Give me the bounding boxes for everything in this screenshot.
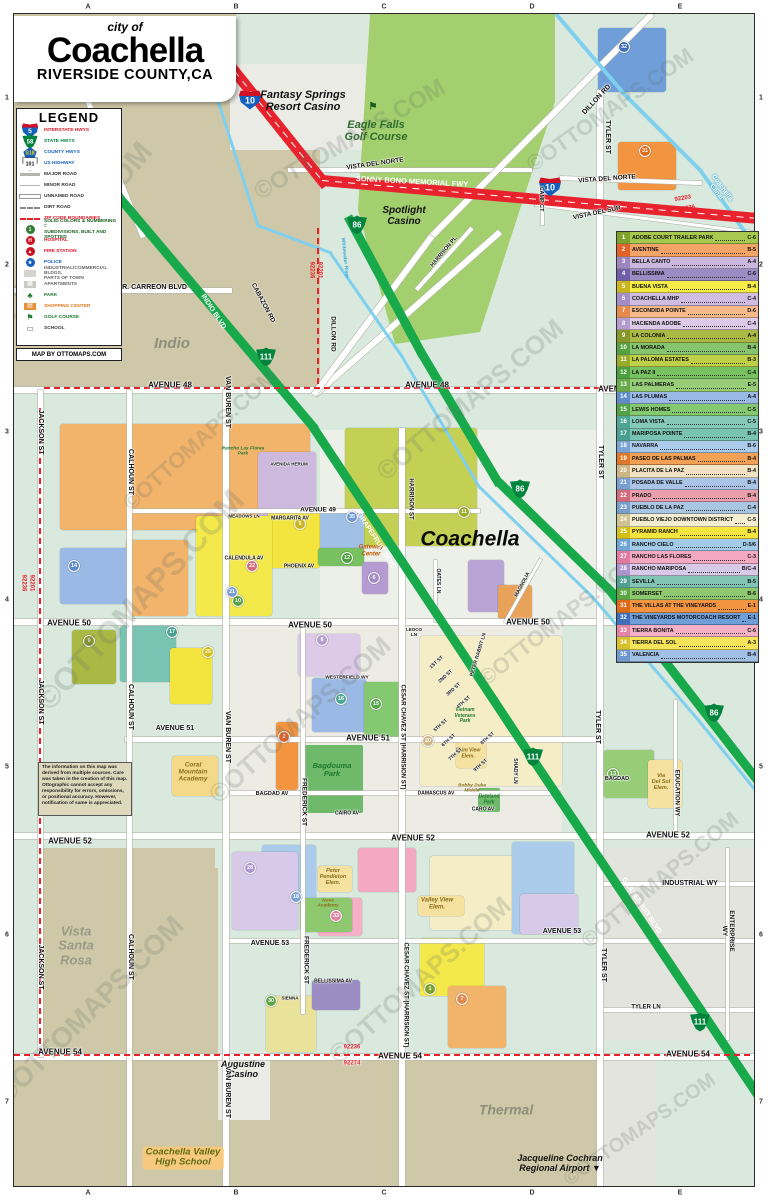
- grid-row-7: 7: [5, 1099, 9, 1106]
- subdivision-area: [358, 848, 416, 892]
- legend-item: 1SOLID COLORS & NUMBERING = SUBDIVISIONS…: [19, 224, 119, 235]
- index-grid-ref: E-1: [748, 603, 758, 609]
- index-leader-dots: [735, 517, 745, 524]
- index-name: LAS PLUMAS: [630, 394, 667, 400]
- index-row: 23PUEBLO DE LA PAZC-4: [617, 502, 758, 514]
- grid-row-7: 7: [759, 1099, 763, 1106]
- grid-col-C: C: [381, 4, 386, 11]
- index-name: PYRAMID RANCH: [630, 529, 678, 535]
- index-name: RANCHO MARIPOSA: [630, 566, 686, 572]
- index-row: 13LAS PALMERASE-5: [617, 379, 758, 391]
- index-leader-dots: [686, 467, 745, 474]
- index-leader-dots: [672, 406, 745, 413]
- title-county: RIVERSIDE COUNTY,CA: [14, 67, 236, 83]
- legend-item-label: MINOR ROAD: [44, 183, 75, 188]
- legend-item-label: POLICE: [44, 260, 62, 265]
- coachella-map-page: { "title": {"city_of": "city of", "name"…: [0, 0, 768, 1200]
- index-grid-ref: D-6: [747, 308, 758, 314]
- road-tyler-st: TYLER ST: [596, 445, 604, 479]
- subdivision-badge-6: 6: [368, 572, 380, 584]
- index-number: 19: [617, 453, 630, 464]
- index-leader-dots: [667, 332, 745, 339]
- zip-92236: 92236: [308, 262, 315, 279]
- index-grid-ref: C-5: [747, 407, 758, 413]
- road-dillon-rd: DILLON RD: [329, 316, 336, 351]
- road-avenue-52: AVENUE 52: [48, 838, 92, 847]
- road-bagdad-av: BAGDAD AV: [256, 791, 289, 797]
- index-grid-ref: B-4: [747, 456, 758, 462]
- road-avenue-48: AVENUE 48: [405, 382, 449, 391]
- index-row: 26RANCHO CIELOD-5/6: [617, 539, 758, 551]
- road-line: [399, 428, 405, 1186]
- grid-row-6: 6: [5, 932, 9, 939]
- index-name: ADOBE COURT TRAILER PARK: [630, 235, 713, 241]
- subdivision-badge-31: 31: [639, 145, 651, 157]
- whitewater-river: [696, 717, 754, 790]
- index-grid-ref: C-5: [747, 419, 758, 425]
- map-credit: MAP BY OTTOMAPS.COM: [16, 348, 122, 361]
- label-indio: Indio: [154, 336, 190, 353]
- index-grid-ref: C-6: [747, 271, 758, 277]
- legend-item: ♣PARK: [19, 290, 119, 301]
- index-row: 12LA PAZ IIC-4: [617, 367, 758, 379]
- road-bagdad: BAGDAD: [605, 776, 629, 782]
- index-name: HACIENDA ADOBE: [630, 321, 681, 327]
- index-leader-dots: [657, 578, 746, 585]
- road-tyler-st: TYLER ST: [603, 120, 611, 154]
- index-name: TIERRA BONITA: [630, 628, 674, 634]
- road-jackson-st: JACKSON ST: [36, 944, 44, 989]
- shopping-cart-icon: ▤: [24, 303, 36, 310]
- subdivision-badge-1: 1: [424, 983, 436, 995]
- grid-row-4: 4: [5, 597, 9, 604]
- index-name: POSADA DE VALLE: [630, 480, 683, 486]
- legend-item-label: GOLF COURSE: [44, 315, 79, 320]
- index-row: 25PYRAMID RANCHB-4: [617, 527, 758, 539]
- subdivision-badge-32: 32: [618, 41, 630, 53]
- map-title-box: city of Coachella RIVERSIDE COUNTY,CA: [14, 16, 236, 102]
- index-leader-dots: [742, 615, 745, 622]
- subdivision-area: [232, 852, 298, 930]
- index-leader-dots: [657, 369, 745, 376]
- road-line: [597, 90, 603, 1186]
- index-grid-ref: B-4: [747, 468, 758, 474]
- legend-swatch: [19, 270, 41, 277]
- legend-item: ▭SCHOOL: [19, 323, 119, 334]
- park-icon: ♣: [19, 291, 41, 300]
- bagdouma-park-area: [305, 745, 363, 813]
- road-avenida-herum: AVENIDA HERUM: [270, 463, 308, 468]
- index-leader-dots: [718, 602, 745, 609]
- index-name: LEWIS HOMES: [630, 407, 670, 413]
- road-avenue-50: AVENUE 50: [506, 619, 550, 628]
- road-leoco-ln: LEOCO LN: [406, 628, 422, 638]
- index-number: 5: [617, 281, 630, 292]
- index-name: LA PAZ II: [630, 370, 655, 376]
- index-number: 21: [617, 478, 630, 489]
- road-avenue-50: AVENUE 50: [47, 620, 91, 629]
- road-education-wy: EDUCATION WY: [673, 770, 680, 817]
- index-leader-dots: [698, 455, 746, 462]
- index-leader-dots: [672, 259, 745, 266]
- legend-panel: LEGEND 5INTERSTATE HWYS58STATE HWYSS18CO…: [16, 108, 122, 346]
- subdivision-area: [430, 856, 518, 930]
- subdivision-badge-11: 11: [458, 506, 470, 518]
- legend-swatch: [19, 207, 41, 209]
- legend-swatch-thin: [20, 185, 40, 187]
- index-number: 20: [617, 465, 630, 476]
- legend-item-label: STATE HWYS: [44, 139, 75, 144]
- thermal-area: [14, 1057, 600, 1186]
- road-frederick-st: FREDERICK ST: [300, 778, 307, 826]
- label-bagdouma-park: Bagdouma Park: [313, 762, 352, 779]
- index-number: 15: [617, 404, 630, 415]
- subdivision-number-icon: 1: [19, 225, 41, 234]
- index-leader-dots: [681, 295, 745, 302]
- index-name: LA PALOMA ESTATES: [630, 357, 689, 363]
- county-shield: S18: [23, 147, 37, 159]
- label-peter-pendleton-elem: Peter Pendleton Elem.: [320, 868, 347, 886]
- index-grid-ref: B-4: [747, 284, 758, 290]
- index-row: 24PUEBLO VIEJO DOWNTOWN DISTRICTC-5: [617, 514, 758, 526]
- index-number: 29: [617, 576, 630, 587]
- legend-item: DIRT ROAD: [19, 202, 119, 213]
- index-number: 28: [617, 564, 630, 575]
- index-row: 4BELLISSIMAC-6: [617, 269, 758, 281]
- legend-item: 5INTERSTATE HWYS: [19, 125, 119, 136]
- label-spotlight-casino: Spotlight Casino: [382, 205, 425, 227]
- disclaimer-box: The information on this map was derived …: [38, 762, 132, 816]
- shopping-cart-icon: ▤: [19, 303, 41, 310]
- index-name: VALENCIA: [630, 652, 659, 658]
- legend-item: 101US HIGHWAY: [19, 158, 119, 169]
- road-margarita-av: MARGARITA AV: [271, 516, 309, 522]
- index-leader-dots: [693, 553, 745, 560]
- road-frederick-st: FREDERICK ST: [302, 936, 309, 984]
- index-row: 8HACIENDA ADOBEC-4: [617, 318, 758, 330]
- road-van-buren-st: VAN BUREN ST: [223, 376, 231, 428]
- index-name: PLACITA DE LA PAZ: [630, 468, 684, 474]
- road-enterprise-wy: ENTERPRISE WY: [721, 910, 735, 952]
- index-number: 8: [617, 318, 630, 329]
- subdivision-badge-7: 7: [456, 993, 468, 1005]
- index-number: 1: [617, 232, 630, 243]
- index-grid-ref: B-4: [747, 480, 758, 486]
- grid-row-2: 2: [759, 262, 763, 269]
- index-row: 32THE VINEYARDS MOTORCOACH RESORTE-1: [617, 613, 758, 625]
- vista-santa-rosa-2: [130, 868, 218, 1054]
- subdivision-badge-25: 25: [202, 646, 214, 658]
- road-cesar-chavez-st: CESAR CHAVEZ ST (HARRISION ST): [399, 685, 406, 790]
- index-name: TIERRA DEL SOL: [630, 640, 677, 646]
- legend-item: ⚑GOLF COURSE: [19, 312, 119, 323]
- index-leader-dots: [667, 418, 746, 425]
- index-row: 11LA PALOMA ESTATESB-3: [617, 355, 758, 367]
- index-name: BELLA CANTO: [630, 259, 670, 265]
- legend-swatch-box: [24, 270, 36, 277]
- index-number: 12: [617, 367, 630, 378]
- label-veterans-park: Vietnam Veterans Park: [455, 708, 476, 725]
- road-van-buren-st: VAN BUREN ST: [223, 1066, 231, 1118]
- index-row: 18NAVARRAB-6: [617, 441, 758, 453]
- index-leader-dots: [676, 541, 741, 548]
- legend-swatch-outline: [19, 194, 41, 199]
- index-leader-dots: [691, 357, 746, 364]
- legend-item-label: MAJOR ROAD: [44, 172, 77, 177]
- index-number: 2: [617, 244, 630, 255]
- subdivision-badge-12: 12: [341, 552, 353, 564]
- label-rancho-las-flores-park: Rancho Las Flores Park: [222, 447, 265, 458]
- index-number: 10: [617, 343, 630, 354]
- index-name: SEVILLA: [630, 579, 655, 585]
- index-number: 31: [617, 600, 630, 611]
- zip-92236: 92236: [20, 575, 27, 592]
- index-leader-dots: [685, 480, 746, 487]
- index-leader-dots: [660, 443, 745, 450]
- road-jackson-st: JACKSON ST: [36, 679, 44, 724]
- page-title: Coachella: [14, 34, 236, 67]
- index-leader-dots: [653, 492, 745, 499]
- index-grid-ref: B-4: [747, 529, 758, 535]
- road-harrison-st: HARRISON ST: [407, 478, 414, 519]
- grid-col-D: D: [529, 1190, 534, 1197]
- subdivision-badge-9: 9: [83, 635, 95, 647]
- grid-row-3: 3: [759, 429, 763, 436]
- index-row: 6COACHELLA MHPC-4: [617, 293, 758, 305]
- index-name: PASEO DE LAS PALMAS: [630, 456, 696, 462]
- road-avenue-53: AVENUE 53: [251, 940, 289, 948]
- index-row: 14LAS PLUMASA-4: [617, 392, 758, 404]
- index-row: 31THE VILLAS AT THE VINEYARDSE-1: [617, 600, 758, 612]
- index-number: 4: [617, 269, 630, 280]
- road-avenue-51: AVENUE 51: [346, 735, 390, 744]
- road-jackson-st: JACKSON ST: [36, 409, 44, 454]
- index-number: 9: [617, 330, 630, 341]
- grid-col-B: B: [233, 1190, 238, 1197]
- police-icon: ★: [19, 258, 41, 267]
- road-avenue-52: AVENUE 52: [391, 835, 435, 844]
- road-avenue-50: AVENUE 50: [288, 622, 332, 631]
- legend-item-label: APARTMENTS: [44, 282, 77, 287]
- index-grid-ref: A-4: [747, 394, 758, 400]
- road-van-buren-st: VAN BUREN ST: [223, 711, 231, 763]
- road-avenue-54: AVENUE 54: [378, 1053, 422, 1062]
- road-calhoun-st: CALHOUN ST: [126, 449, 134, 495]
- legend-item-label: DIRT ROAD: [44, 205, 71, 210]
- index-number: 11: [617, 355, 630, 366]
- road-line: [14, 833, 754, 839]
- school-icon: ▭: [26, 324, 34, 333]
- road-camp-ct: CAMP CT: [538, 187, 544, 212]
- grid-row-1: 1: [5, 95, 9, 102]
- grid-col-A: A: [85, 1190, 90, 1197]
- index-number: 30: [617, 588, 630, 599]
- index-row: 28RANCHO MARIPOSAB/C-4: [617, 564, 758, 576]
- index-name: AVENTINE: [630, 247, 659, 253]
- index-number: 32: [617, 613, 630, 624]
- grid-row-5: 5: [5, 764, 9, 771]
- label-coachella: Coachella: [420, 527, 519, 550]
- subdivision-badge-20: 20: [422, 735, 434, 747]
- index-grid-ref: C-3: [747, 554, 758, 560]
- label-cv-high-school: Coachella Valley High School: [143, 1147, 224, 1170]
- golf-icon: ⚑: [26, 313, 33, 322]
- fire-station-icon: ▲: [19, 247, 41, 256]
- label-via-del-sol-elem: Via Del Sol Elem.: [652, 773, 671, 791]
- index-grid-ref: B-4: [747, 431, 758, 437]
- index-number: 18: [617, 441, 630, 452]
- index-grid-ref: C-4: [747, 370, 758, 376]
- subdivision-badge-17: 17: [166, 626, 178, 638]
- hospital-icon: H: [19, 236, 41, 245]
- zip-92274: 92274: [344, 1061, 361, 1068]
- road-cairo-av: CAIRO AV: [335, 811, 359, 817]
- index-number: 35: [617, 650, 630, 661]
- subdivision-area: [298, 634, 360, 676]
- road-calhoun-st: CALHOUN ST: [126, 684, 134, 730]
- index-name: THE VINEYARDS MOTORCOACH RESORT: [630, 615, 740, 621]
- index-name: BELLISSIMA: [630, 271, 665, 277]
- police-icon: ★: [26, 258, 35, 267]
- label-fantasy-springs: Fantasy Springs Resort Casino: [260, 89, 346, 113]
- subdivision-area: [312, 678, 366, 732]
- legend-item: ▲FIRE STATION: [19, 246, 119, 257]
- road-avenue-54: AVENUE 54: [38, 1049, 82, 1058]
- road-calhoun-st: CALHOUN ST: [126, 934, 134, 980]
- subdivision-area: [126, 540, 188, 616]
- index-grid-ref: B/C-4: [742, 566, 758, 572]
- road-damascus-av: DAMASCUS AV: [418, 791, 455, 797]
- road-tyler-st: TYLER ST: [599, 948, 607, 982]
- road-phoenix-av: PHOENIX AV: [284, 564, 314, 570]
- legend-item-label: SCHOOL: [44, 326, 65, 331]
- subdivision-badge-21: 21: [226, 586, 238, 598]
- index-leader-dots: [683, 320, 745, 327]
- index-name: SOMERSET: [630, 591, 662, 597]
- index-name: MARIPOSA POINTE: [630, 431, 682, 437]
- index-number: 7: [617, 306, 630, 317]
- index-row: 19PASEO DE LAS PALMASB-4: [617, 453, 758, 465]
- index-row: 17MARIPOSA POINTEB-4: [617, 429, 758, 441]
- index-name: LOMA VISTA: [630, 419, 665, 425]
- legend-item: ▤SHOPPING CENTER: [19, 301, 119, 312]
- road-cesar-chavez-st: CESAR CHAVEZ ST (HARRISION ST): [402, 943, 409, 1048]
- index-leader-dots: [664, 590, 745, 597]
- index-grid-ref: A-3: [747, 640, 758, 646]
- legend-swatch: [19, 194, 41, 199]
- index-grid-ref: B-4: [747, 345, 758, 351]
- index-leader-dots: [679, 639, 746, 646]
- grid-row-4: 4: [759, 597, 763, 604]
- legend-swatch-zipdash: [20, 218, 40, 220]
- legend-item-label: SHOPPING CENTER: [44, 304, 90, 309]
- legend-item-label: COUNTY HWYS: [44, 150, 80, 155]
- zip-92201: 92201: [316, 262, 323, 279]
- grid-col-B: B: [233, 4, 238, 11]
- index-row: 30SOMERSETB-6: [617, 588, 758, 600]
- index-leader-dots: [688, 308, 746, 315]
- index-row: 7ESCONDIDA POINTED-6: [617, 306, 758, 318]
- index-grid-ref: B-6: [747, 443, 758, 449]
- index-grid-ref: C-4: [747, 321, 758, 327]
- grid-col-E: E: [678, 1190, 683, 1197]
- index-grid-ref: B-5: [747, 247, 758, 253]
- subdivision-badge-16: 16: [335, 693, 347, 705]
- apartments-icon: ▦: [19, 281, 41, 288]
- label-valley-view-elem: Valley View Elem.: [421, 897, 453, 910]
- road-westerfield-wy: WESTERFIELD WY: [325, 675, 368, 680]
- index-row: 3BELLA CANTOA-4: [617, 257, 758, 269]
- index-grid-ref: B-5: [747, 579, 758, 585]
- index-name: LAS PALMERAS: [630, 382, 674, 388]
- grid-row-5: 5: [759, 764, 763, 771]
- index-leader-dots: [676, 381, 745, 388]
- subdivision-area: [60, 548, 132, 604]
- subdivision-badge-30: 30: [265, 995, 277, 1007]
- index-grid-ref: A-4: [747, 259, 758, 265]
- zip-92201: 92201: [28, 575, 35, 592]
- legend-item: INDUSTRIAL/COMMERCIAL BLDGS, PARTS OF TO…: [19, 268, 119, 279]
- water-label-whitewater-river: Whitewater River: [339, 238, 349, 279]
- index-leader-dots: [661, 246, 745, 253]
- subdivision-badge-8: 8: [316, 634, 328, 646]
- road-calendula-av: CALENDULA AV: [225, 556, 264, 562]
- road-oates-ln: OATES LN: [434, 569, 440, 594]
- index-number: 22: [617, 490, 630, 501]
- zip-92203: 92203: [674, 194, 692, 203]
- subdivision-badge-15: 15: [370, 698, 382, 710]
- index-name: THE VILLAS AT THE VINEYARDS: [630, 603, 716, 609]
- label-thermal: Thermal: [479, 1102, 533, 1117]
- legend-item-label: HOSPITAL: [44, 238, 68, 243]
- index-number: 17: [617, 429, 630, 440]
- grid-col-D: D: [529, 4, 534, 11]
- grid-col-C: C: [381, 1190, 386, 1197]
- index-leader-dots: [688, 566, 740, 573]
- index-number: 13: [617, 379, 630, 390]
- legend-item-label: FIRE STATION: [44, 249, 77, 254]
- index-name: COACHELLA MHP: [630, 296, 679, 302]
- index-name: PRADO: [630, 493, 651, 499]
- index-grid-ref: B-6: [747, 591, 758, 597]
- index-name: NAVARRA: [630, 443, 658, 449]
- index-number: 23: [617, 502, 630, 513]
- road-dr-carreon-blvd: DR. CARREON BLVD: [117, 284, 187, 292]
- index-row: 1ADOBE COURT TRAILER PARKC-6: [617, 232, 758, 244]
- index-row: 2AVENTINEB-5: [617, 244, 758, 256]
- index-number: 33: [617, 625, 630, 636]
- label-vista-santa-rosa: Vista Santa Rosa: [58, 925, 93, 968]
- index-row: 34TIERRA DEL SOLA-3: [617, 637, 758, 649]
- index-number: 24: [617, 514, 630, 525]
- index-row: 9LA COLONIAA-4: [617, 330, 758, 342]
- tyler-south-block: [601, 1057, 656, 1186]
- index-grid-ref: B-3: [747, 357, 758, 363]
- index-name: BUENA VISTA: [630, 284, 668, 290]
- road-tyler-st: TYLER ST: [593, 710, 601, 744]
- legend-item: S18COUNTY HWYS: [19, 147, 119, 158]
- legend-item-label: UNNAMED ROAD: [44, 194, 84, 199]
- index-leader-dots: [715, 234, 745, 241]
- us-shield: 101: [23, 157, 38, 171]
- road-avenue-53: AVENUE 53: [543, 928, 581, 936]
- index-name: ESCONDIDA POINTE: [630, 308, 686, 314]
- grid-row-6: 6: [759, 932, 763, 939]
- legend-item-label: INDUSTRIAL/COMMERCIAL BLDGS, PARTS OF TO…: [44, 266, 119, 281]
- park-icon: ♣: [27, 291, 32, 300]
- index-leader-dots: [667, 345, 746, 352]
- label-bobby-duke-middle: Bobby Duke Middle: [458, 784, 486, 795]
